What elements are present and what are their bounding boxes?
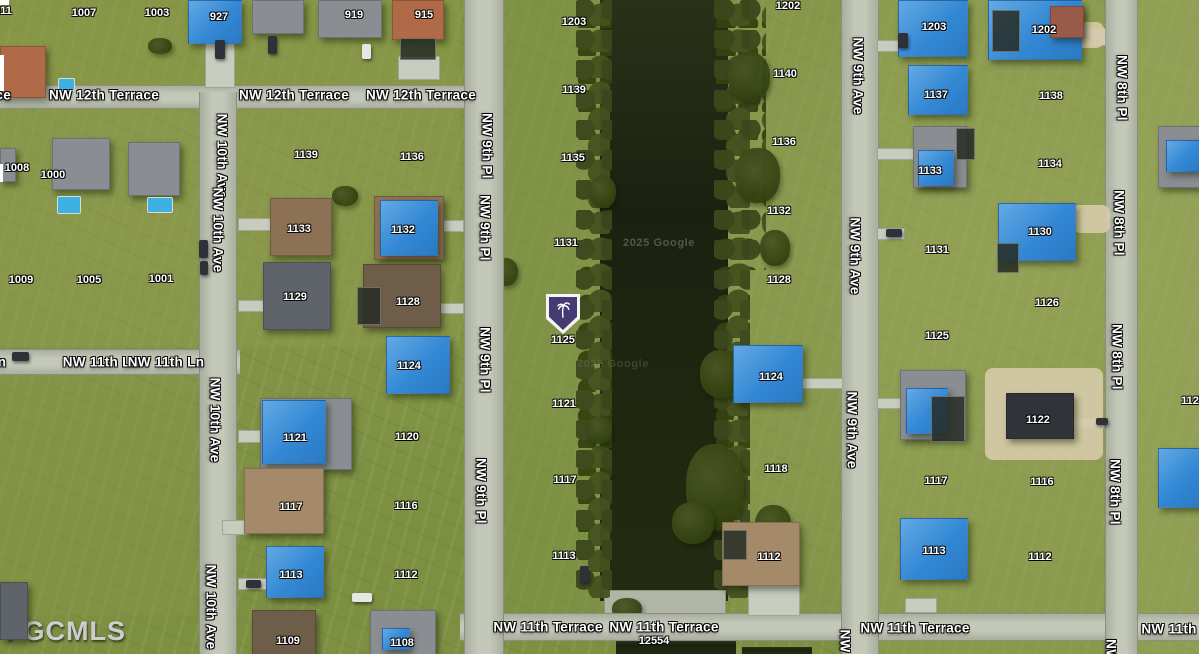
street-name-label: NW 9th Pl	[478, 327, 493, 393]
dirt-patch	[1072, 205, 1110, 233]
tree	[148, 38, 172, 54]
lot-number-label: 1108	[390, 637, 414, 649]
street-name-label: NW 11th Ln	[0, 355, 6, 370]
satellite-map[interactable]: FGCMLS 101110071003927919915120312021203…	[0, 0, 1199, 654]
tree	[590, 176, 616, 208]
lot-number-label: 927	[210, 11, 228, 23]
street-name-label: NW 8th Pl	[1104, 639, 1119, 654]
street-name-label: NW 9th Ave	[851, 37, 866, 114]
tree	[672, 502, 714, 544]
vehicle	[199, 240, 208, 258]
lot-number-label: 1113	[279, 569, 302, 581]
lot-number-label: 1132	[391, 224, 415, 236]
driveway	[797, 378, 843, 389]
lot-number-label: 1124	[759, 371, 783, 383]
tree	[760, 230, 790, 266]
canal-bank-vegetation	[716, 0, 766, 270]
driveway	[238, 218, 274, 231]
lot-number-label: 1116	[1030, 476, 1053, 488]
lot-number-label: 1109	[276, 635, 300, 647]
lot-number-label: 1009	[9, 274, 33, 286]
image-edge-artifact	[0, 55, 4, 91]
vehicle	[268, 36, 277, 54]
street-name-label: NW 8th Pl	[1108, 459, 1123, 525]
street-name-label: NW 9th Ave	[845, 391, 860, 468]
street-name-label: NW 12th Terrace	[49, 88, 159, 103]
lot-number-label: 1112	[1028, 551, 1051, 563]
vehicle	[898, 33, 908, 48]
street-name-label: NW 11th Terrace	[1141, 622, 1199, 637]
driveway	[877, 148, 917, 160]
lot-number-label: 1203	[562, 16, 586, 28]
lot-number-label: 1000	[41, 169, 65, 181]
street-name-label: NW 12th Terrace	[0, 88, 11, 103]
tree	[332, 186, 358, 206]
house-roof	[252, 0, 304, 34]
street-name-label: NW 11th Terrace	[860, 621, 969, 636]
lot-number-label: 1129	[283, 291, 307, 303]
lot-number-label: 1008	[5, 162, 29, 174]
canal-water	[616, 641, 736, 654]
lot-number-label: 1124	[397, 360, 421, 372]
lot-number-label: 1125	[925, 330, 949, 342]
listing-pin[interactable]: 1125	[546, 294, 580, 334]
lot-number-label: 12554	[639, 635, 670, 647]
image-edge-artifact	[0, 164, 3, 182]
street-name-label: NW 8th Pl	[1115, 55, 1130, 121]
grass-field	[0, 375, 196, 615]
street-name-label: NW 9th Pl	[474, 458, 489, 524]
lot-number-label: 1005	[77, 274, 101, 286]
lot-number-label: 1202	[776, 0, 800, 12]
lot-number-label: 1120	[395, 431, 419, 443]
lot-number-label: 1137	[924, 89, 948, 101]
street-name-label: NW 8th Pl	[1110, 324, 1125, 390]
pool-enclosure	[931, 396, 965, 442]
vehicle	[580, 566, 589, 583]
lot-number-label: 1121	[552, 398, 576, 410]
lot-number-label: 1001	[149, 273, 173, 285]
street-name-label: NW 9th Ave	[848, 217, 863, 294]
lot-number-label: 1128	[767, 274, 791, 286]
lot-number-label: 1112	[394, 569, 417, 581]
google-attribution: 2025 Google	[577, 358, 649, 370]
house-roof	[1158, 448, 1199, 508]
vehicle	[362, 44, 371, 59]
vehicle	[215, 40, 225, 59]
street-name-label: NW 11th Terrace	[493, 620, 602, 635]
lot-number-label: 1140	[773, 68, 797, 80]
pool-enclosure	[997, 243, 1019, 273]
lot-number-label: 1117	[553, 474, 576, 486]
vehicle	[1096, 418, 1108, 425]
pool-enclosure	[992, 10, 1020, 52]
house-roof	[0, 582, 28, 640]
lot-number-label: 1126	[1035, 297, 1059, 309]
lot-number-label: 1131	[554, 237, 578, 249]
street-name-label: NW 8th Pl	[1112, 190, 1127, 256]
grass-field	[1136, 0, 1199, 654]
street-name-label: NW 11th Terrace	[609, 620, 718, 635]
lot-number-label: 1118	[764, 463, 787, 475]
lot-number-label: 1112	[757, 551, 780, 563]
lot-number-label: 1122	[1026, 414, 1050, 426]
pool-enclosure	[400, 38, 436, 60]
street-name-label: NW 9th Ave	[838, 629, 853, 654]
street-name-label: NW 12th Terrace	[366, 88, 476, 103]
street-name-label: NW 10th Ave	[215, 114, 230, 199]
pool-enclosure	[357, 287, 381, 325]
lot-number-label: 1138	[1039, 90, 1063, 102]
tree	[728, 52, 770, 102]
lot-number-label: 1128	[396, 296, 420, 308]
lot-number-label: 1134	[1038, 158, 1062, 170]
lot-number-label: 1007	[72, 7, 96, 19]
lot-number-label: 1121	[283, 432, 307, 444]
lot-number-label: 1113	[552, 550, 575, 562]
vehicle	[886, 229, 902, 237]
street-name-label: NW 12th Terrace	[239, 88, 349, 103]
vehicle	[12, 352, 29, 361]
lot-number-label: 1003	[145, 7, 169, 19]
lot-number-label: 1136	[400, 151, 424, 163]
vehicle	[200, 261, 208, 275]
lot-number-label: 1131	[925, 244, 949, 256]
swimming-pool	[57, 196, 81, 214]
lot-number-label: 1136	[772, 136, 796, 148]
lot-number-label: 1117	[279, 501, 302, 513]
palm-tree-logo-icon	[554, 299, 572, 321]
pin-lot-number: 1125	[551, 334, 575, 346]
vehicle	[246, 580, 261, 588]
street-name-label: NW 11th Ln	[128, 355, 205, 370]
lot-number-label: 919	[345, 9, 363, 21]
lot-number-label: 1132	[767, 205, 791, 217]
lot-number-label: 1139	[562, 84, 586, 96]
street-name-label: NW 9th Pl	[480, 113, 495, 179]
driveway	[442, 220, 464, 232]
house-roof	[52, 138, 110, 190]
pool-enclosure	[956, 128, 975, 160]
vehicle	[352, 593, 372, 602]
street-name-label: NW 9th Pl	[478, 195, 493, 261]
lot-number-label: 1139	[294, 149, 318, 161]
lot-number-label: 1121	[1181, 395, 1199, 407]
lot-number-label: 915	[415, 9, 433, 21]
street-name-label: NW 10th Ave	[204, 565, 219, 650]
lot-number-label: 1130	[1028, 226, 1052, 238]
lot-number-label: 1116	[394, 500, 417, 512]
canal-water	[742, 647, 812, 654]
driveway	[905, 598, 937, 613]
lot-number-label: 1133	[918, 165, 942, 177]
lot-number-label: 1011	[0, 5, 12, 17]
tree	[588, 416, 612, 444]
lot-number-label: 1113	[922, 545, 945, 557]
house-roof	[252, 610, 316, 654]
house-roof	[128, 142, 180, 196]
lot-number-label: 1133	[287, 223, 311, 235]
lot-number-label: 1135	[561, 152, 585, 164]
house-roof	[1166, 140, 1199, 172]
swimming-pool	[147, 197, 173, 213]
tree	[735, 148, 780, 203]
lot-number-label: 1203	[922, 21, 946, 33]
google-attribution: 2025 Google	[623, 237, 695, 249]
street-name-label: NW 10th Ave	[208, 378, 223, 463]
pool-enclosure	[723, 530, 747, 560]
lot-number-label: 1117	[924, 475, 947, 487]
lot-number-label: 1202	[1032, 24, 1056, 36]
driveway	[440, 303, 464, 314]
street-name-label: NW 10th Ave	[211, 188, 226, 273]
